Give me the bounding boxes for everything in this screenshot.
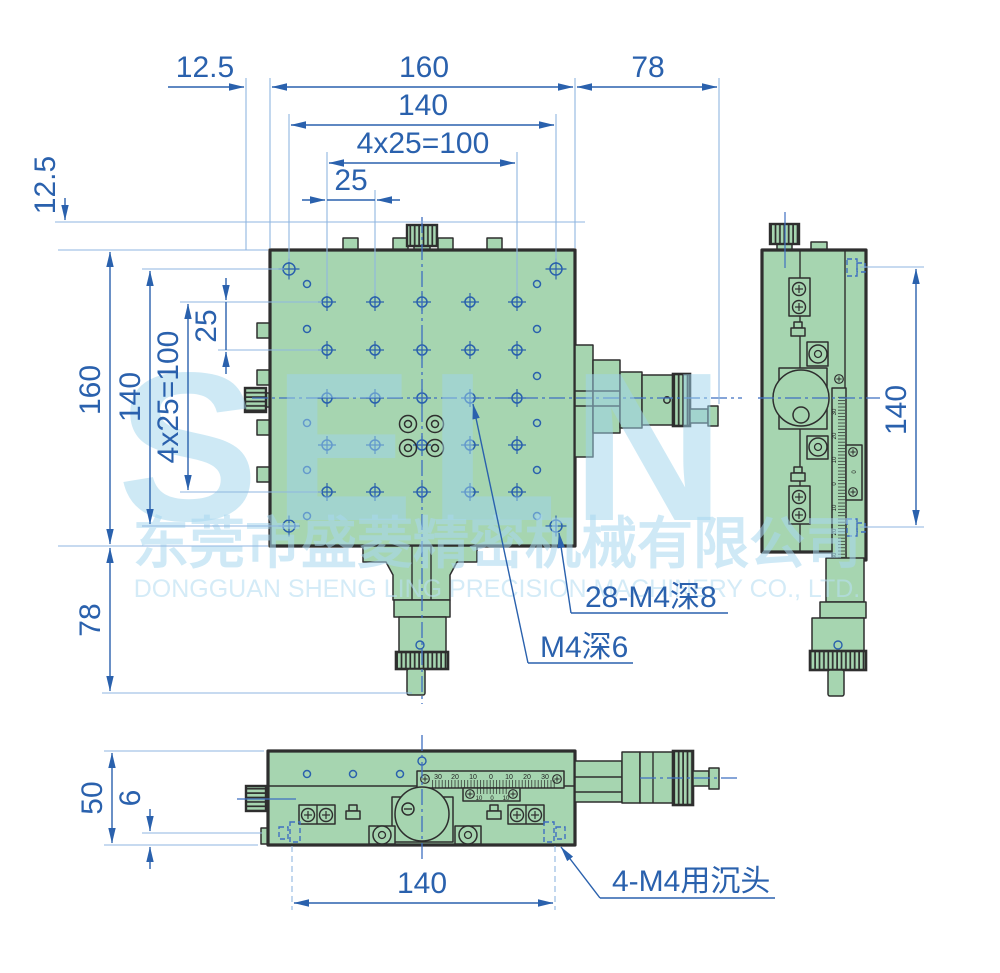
bottom-view: 30 20 10 0 10 20 30 10 0 10 [237, 735, 738, 862]
svg-text:10: 10 [469, 774, 477, 781]
company-name-cn: 东莞市盛菱精密机械有限公司 [133, 512, 861, 575]
side-view: 30 20 10 0 10 20 30 0 [758, 212, 880, 696]
dim-160-left: 160 [74, 365, 107, 415]
svg-text:10: 10 [832, 504, 838, 511]
dim-140-bottom: 140 [397, 867, 447, 900]
dim-140-top: 140 [398, 89, 448, 122]
callout-m4-deep6: M4深6 [540, 631, 628, 664]
svg-text:10: 10 [505, 774, 513, 781]
callout-4-m4-counterbore: 4-M4用沉头 [612, 865, 770, 898]
dim-50: 50 [76, 781, 109, 814]
dim-12_5-top: 12.5 [176, 51, 234, 84]
engineering-drawing-page: 30 20 10 0 10 20 30 0 [0, 0, 1000, 973]
dim-140-side: 140 [880, 385, 913, 435]
svg-text:20: 20 [451, 774, 459, 781]
dim-25-left: 25 [190, 309, 223, 342]
watermark: SELN 东莞市盛菱精密机械有限公司 DONGGUAN SHENG LING P… [117, 328, 861, 603]
dimension-side: 140 [880, 269, 916, 525]
dim-100-left: 4x25=100 [152, 331, 185, 464]
xy-stage-technical-drawing: 30 20 10 0 10 20 30 0 [0, 0, 1000, 973]
svg-text:10: 10 [503, 796, 510, 802]
svg-text:10: 10 [476, 796, 483, 802]
dim-6: 6 [114, 790, 147, 807]
dim-12_5-left: 12.5 [29, 156, 62, 214]
side-gib-screws-top [789, 278, 810, 316]
svg-text:20: 20 [832, 432, 838, 439]
svg-text:20: 20 [523, 774, 531, 781]
svg-text:30: 30 [541, 774, 549, 781]
side-washer-bottom [807, 436, 828, 459]
bottom-linear-scale: 30 20 10 0 10 20 30 [417, 771, 564, 788]
dim-25-top: 25 [334, 164, 367, 197]
side-scale-label: 30 [832, 408, 838, 415]
dim-78-left: 78 [74, 603, 107, 636]
dim-100-top: 4x25=100 [357, 127, 490, 160]
company-name-en: DONGGUAN SHENG LING PRECISION MACHINERY … [134, 575, 861, 603]
leader-counterbore [561, 847, 600, 898]
dim-160-top: 160 [399, 51, 449, 84]
dimensions-top: 12.5 160 78 140 4x25=100 25 [168, 51, 717, 200]
callout-28-m4-deep8: 28-M4深8 [585, 581, 717, 614]
svg-text:0: 0 [489, 774, 493, 781]
bottom-vernier: 10 0 10 [463, 788, 520, 802]
dim-140-left: 140 [114, 372, 147, 422]
svg-text:10: 10 [832, 456, 838, 463]
scale-label: 30 [434, 774, 442, 781]
dim-78-top: 78 [631, 51, 664, 84]
side-washer-top [807, 342, 828, 366]
